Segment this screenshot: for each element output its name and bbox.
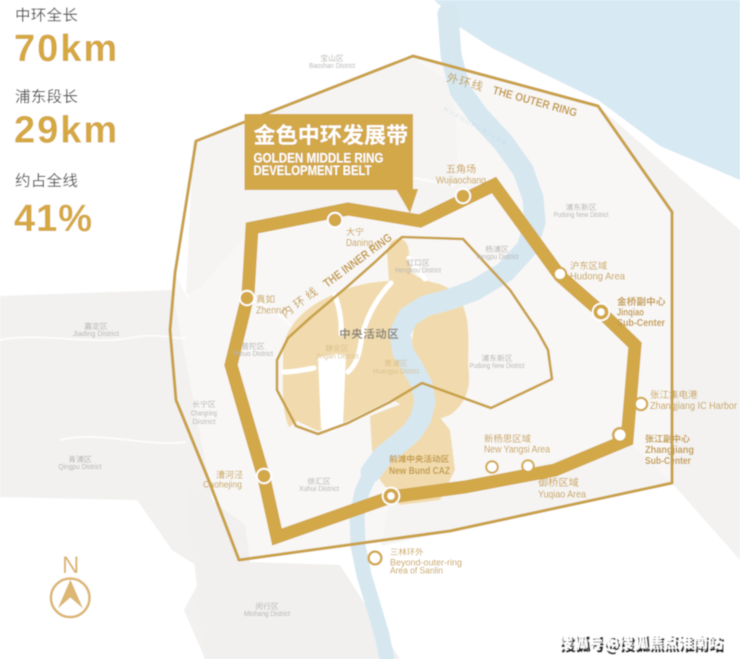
svg-text:Caohejing: Caohejing	[203, 480, 242, 491]
svg-text:DEVELOPMENT BELT: DEVELOPMENT BELT	[254, 163, 372, 178]
svg-text:Huangpu District: Huangpu District	[373, 369, 419, 376]
svg-text:Area of Sanlin: Area of Sanlin	[390, 566, 443, 576]
svg-text:Yuqiao Area: Yuqiao Area	[538, 489, 586, 501]
svg-text:Zhenru: Zhenru	[256, 306, 284, 317]
svg-text:District: District	[193, 419, 216, 426]
svg-text:Wujiaochang: Wujiaochang	[436, 175, 486, 187]
svg-text:Yangpu District: Yangpu District	[476, 254, 519, 261]
svg-text:Jingan District: Jingan District	[316, 354, 359, 361]
svg-text:Qingpu District: Qingpu District	[59, 464, 102, 471]
svg-text:Sub-Center: Sub-Center	[617, 318, 665, 329]
svg-text:N: N	[62, 552, 79, 579]
svg-text:Pudong New District: Pudong New District	[470, 363, 525, 370]
svg-text:70km: 70km	[14, 28, 119, 70]
svg-text:Jinqiao: Jinqiao	[617, 308, 644, 319]
svg-text:Jiading District: Jiading District	[73, 331, 119, 338]
svg-text:Baoshan District: Baoshan District	[309, 63, 355, 70]
svg-text:Minhang District: Minhang District	[244, 611, 290, 618]
svg-text:41%: 41%	[14, 198, 93, 240]
svg-text:Hudong Area: Hudong Area	[570, 271, 625, 283]
svg-text:New Bund CAZ: New Bund CAZ	[389, 466, 450, 477]
svg-text:New Yangsi Area: New Yangsi Area	[484, 445, 550, 456]
svg-text:Pudong New District: Pudong New District	[554, 212, 609, 219]
svg-text:Sub-Center: Sub-Center	[645, 456, 691, 467]
svg-text:Hengkou District: Hengkou District	[395, 268, 441, 275]
svg-text:Xuhui District: Xuhui District	[299, 486, 339, 493]
svg-text:Zhangjiang IC Harbor: Zhangjiang IC Harbor	[650, 401, 738, 412]
svg-text:29km: 29km	[14, 110, 119, 152]
svg-text:Daning: Daning	[346, 238, 373, 249]
svg-text:Putuo District: Putuo District	[233, 351, 273, 358]
svg-text:Zhangjiang: Zhangjiang	[645, 445, 694, 456]
svg-text:Changning: Changning	[191, 411, 217, 418]
